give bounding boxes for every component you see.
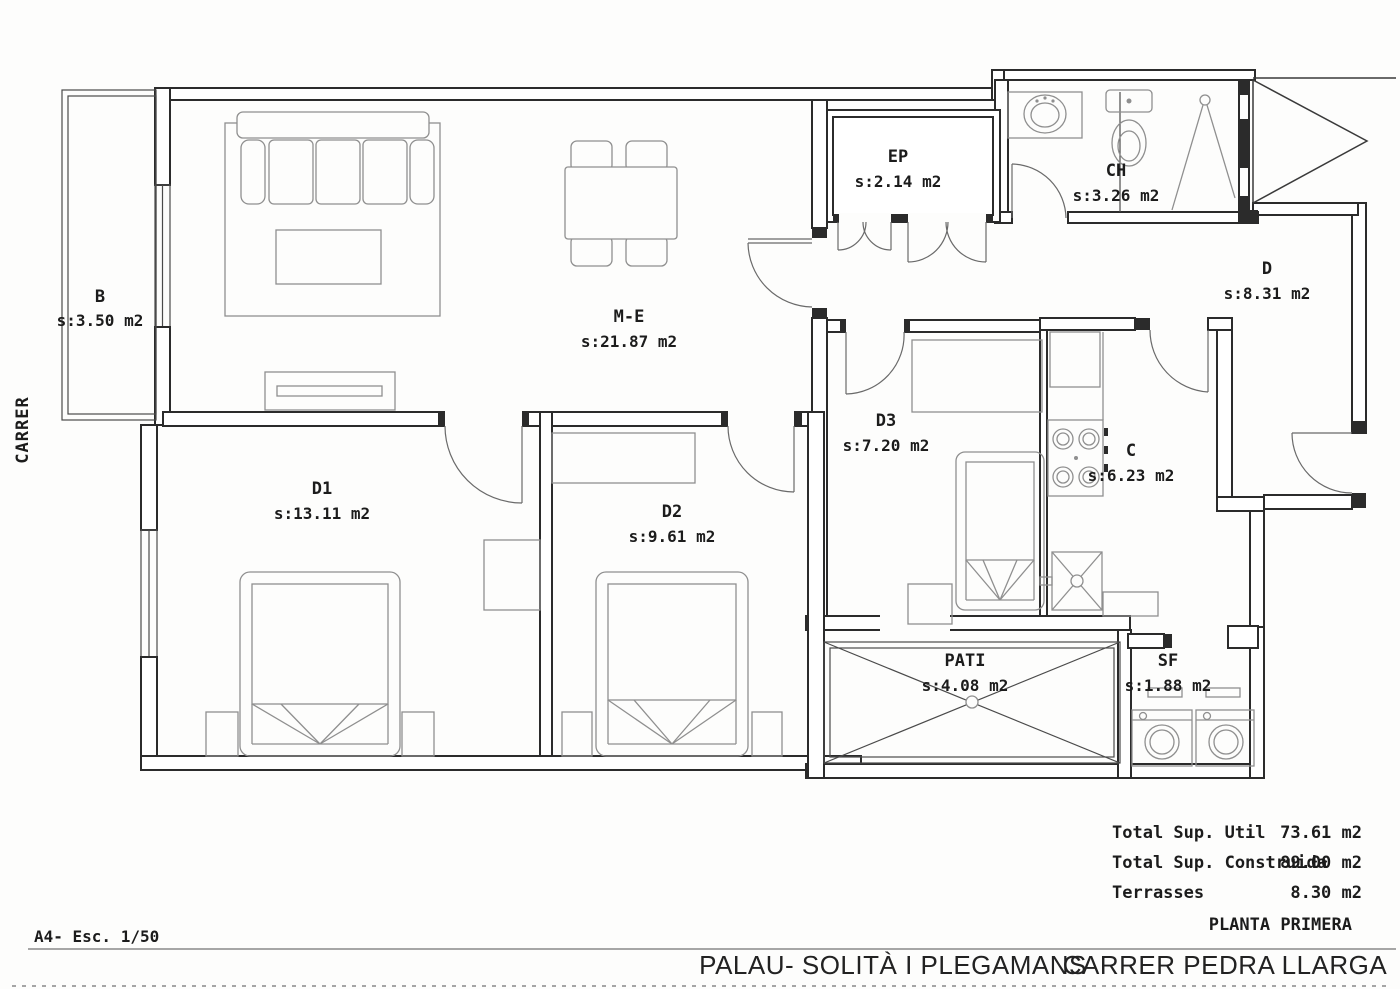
summary-table: Total Sup. Util 73.61 m2 Total Sup. Cons…: [1112, 823, 1362, 935]
bed-d1: [206, 572, 434, 756]
svg-text:73.61 m2: 73.61 m2: [1280, 823, 1362, 843]
svg-text:s:9.61 m2: s:9.61 m2: [629, 527, 716, 546]
toilet: [1106, 90, 1152, 166]
room-label-sf: SF s:1.88 m2: [1125, 651, 1212, 695]
bathroom-sink: [1008, 92, 1082, 138]
room-label-d2: D2 s:9.61 m2: [629, 502, 716, 546]
svg-text:SF: SF: [1158, 651, 1178, 671]
room-label-pati: PATI s:4.08 m2: [922, 651, 1009, 695]
d2-door: [728, 426, 794, 492]
title-municipality: PALAU- SOLITÀ I PLEGAMANS: [699, 950, 1087, 980]
svg-text:s:4.08 m2: s:4.08 m2: [922, 676, 1009, 695]
dining-set: [565, 141, 677, 266]
summary-row: Terrasses 8.30 m2: [1112, 883, 1362, 903]
svg-text:s:8.31 m2: s:8.31 m2: [1224, 284, 1311, 303]
svg-text:D2: D2: [662, 502, 682, 522]
svg-text:PATI: PATI: [945, 651, 986, 671]
svg-text:C: C: [1126, 441, 1136, 461]
svg-text:D1: D1: [312, 479, 332, 499]
floor-plan-sheet: CARRER B s:3.50 m2 M-E s:21.87 m2 EP s:2…: [0, 0, 1400, 989]
d1-door: [445, 426, 522, 503]
title-block: A4- Esc. 1/50 PALAU- SOLITÀ I PLEGAMANS …: [12, 927, 1396, 986]
closet-d1: [484, 540, 540, 610]
svg-text:s:3.50 m2: s:3.50 m2: [57, 311, 144, 330]
balcony-outline: [62, 90, 156, 420]
room-label-d: D s:8.31 m2: [1224, 259, 1311, 303]
svg-text:B: B: [95, 287, 105, 307]
svg-text:89.00 m2: 89.00 m2: [1280, 853, 1362, 873]
closet-d2: [552, 433, 695, 483]
svg-text:s:2.14 m2: s:2.14 m2: [855, 172, 942, 191]
room-label-d1: D1 s:13.11 m2: [274, 479, 370, 523]
closet-d3: [912, 340, 1042, 412]
svg-text:M-E: M-E: [614, 307, 645, 327]
d3-door: [846, 332, 904, 394]
washing-machines: [1132, 688, 1254, 766]
street-label: CARRER: [13, 396, 33, 463]
svg-text:s:3.26 m2: s:3.26 m2: [1073, 186, 1160, 205]
svg-text:s:1.88 m2: s:1.88 m2: [1125, 676, 1212, 695]
svg-text:s:6.23 m2: s:6.23 m2: [1088, 466, 1175, 485]
shower: [1172, 95, 1235, 210]
entry-door: [1292, 433, 1352, 493]
kitchen-sink: [1040, 552, 1102, 610]
room-label-b: B s:3.50 m2: [57, 287, 144, 330]
svg-text:Total Sup. Util: Total Sup. Util: [1112, 823, 1266, 843]
room-label-me: M-E s:21.87 m2: [581, 307, 677, 351]
bed-d2: [562, 572, 782, 756]
bathroom-door: [1012, 164, 1066, 218]
svg-text:CH: CH: [1106, 161, 1126, 181]
room-label-d3: D3 s:7.20 m2: [843, 411, 930, 455]
coffee-table: [276, 230, 381, 284]
sheet-scale: A4- Esc. 1/50: [34, 927, 159, 946]
hall-door: [748, 239, 812, 307]
floor-plan-drawing: CARRER B s:3.50 m2 M-E s:21.87 m2 EP s:2…: [0, 0, 1400, 989]
tv-cabinet: [265, 372, 395, 410]
svg-text:s:7.20 m2: s:7.20 m2: [843, 436, 930, 455]
room-label-ch: CH s:3.26 m2: [1073, 161, 1160, 205]
svg-text:s:21.87 m2: s:21.87 m2: [581, 332, 677, 351]
summary-row: Total Sup. Construida 89.00 m2: [1112, 853, 1362, 873]
svg-text:D3: D3: [876, 411, 896, 431]
title-street: CARRER PEDRA LLARGA: [1063, 950, 1388, 980]
svg-text:8.30 m2: 8.30 m2: [1290, 883, 1362, 903]
svg-text:Terrasses: Terrasses: [1112, 883, 1204, 903]
bed-d3: [908, 452, 1044, 624]
svg-text:s:13.11 m2: s:13.11 m2: [274, 504, 370, 523]
svg-text:D: D: [1262, 259, 1272, 279]
sofa: [225, 112, 440, 316]
svg-text:EP: EP: [888, 147, 908, 167]
plan-name: PLANTA PRIMERA: [1209, 915, 1352, 935]
ep-closet-doors: [838, 222, 986, 262]
kitchen-door: [1150, 330, 1208, 392]
summary-row: Total Sup. Util 73.61 m2: [1112, 823, 1362, 843]
